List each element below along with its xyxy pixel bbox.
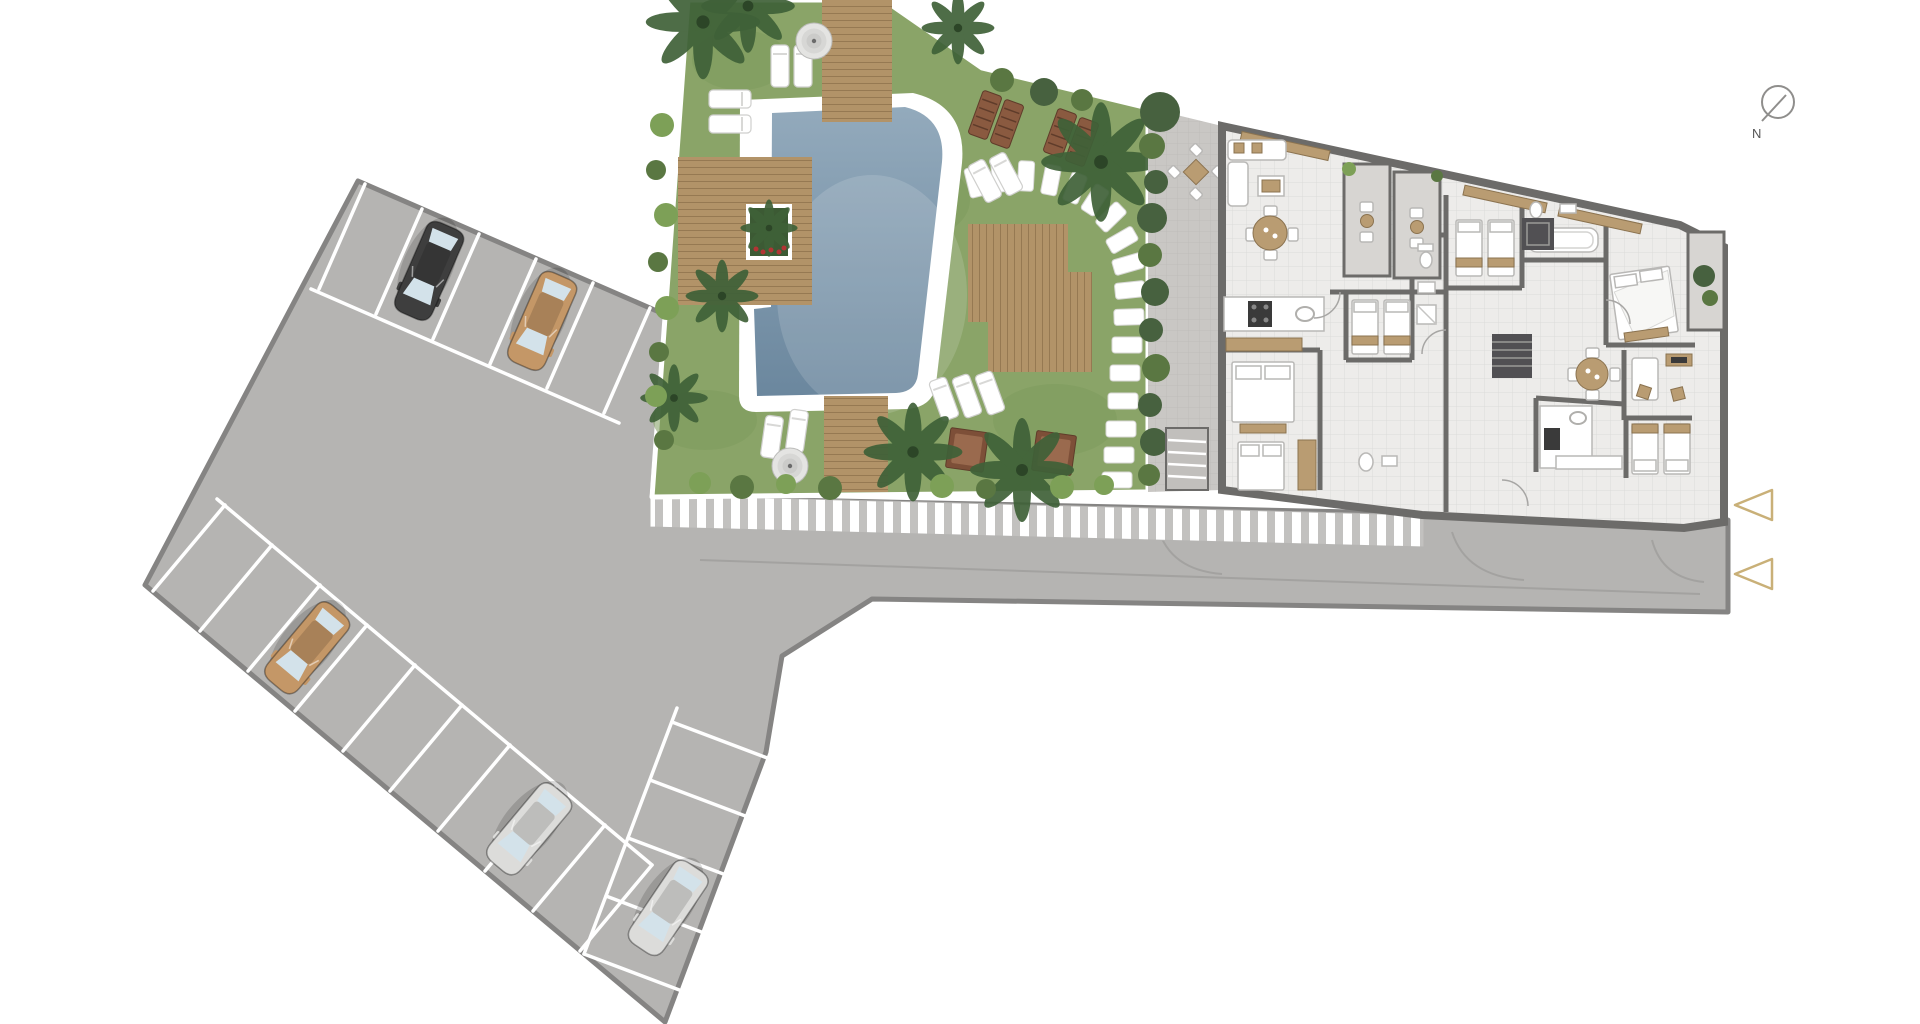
bistro-set [1410,208,1424,248]
entry-terrace [1137,92,1225,492]
stair-core [1492,334,1532,378]
wardrobe [1298,440,1316,490]
bed-double [1232,362,1294,433]
entry-arrow-upper [1735,490,1772,520]
site-plan-canvas: N [0,0,1920,1024]
bed-double [1238,442,1284,490]
parasol-top [796,23,832,59]
north-label: N [1752,126,1761,141]
bistro-set [1360,202,1374,242]
entry-markers [1735,490,1772,589]
entry-steps [1166,428,1208,490]
deck-top [822,0,892,122]
entry-arrow-lower [1735,559,1772,589]
north-compass: N [1752,86,1794,141]
pool-garden [640,0,1161,522]
elevator-core [1522,218,1554,250]
pool-planter [740,199,797,260]
apartment-building [1222,126,1724,528]
deck-lounge-b [988,272,1092,372]
